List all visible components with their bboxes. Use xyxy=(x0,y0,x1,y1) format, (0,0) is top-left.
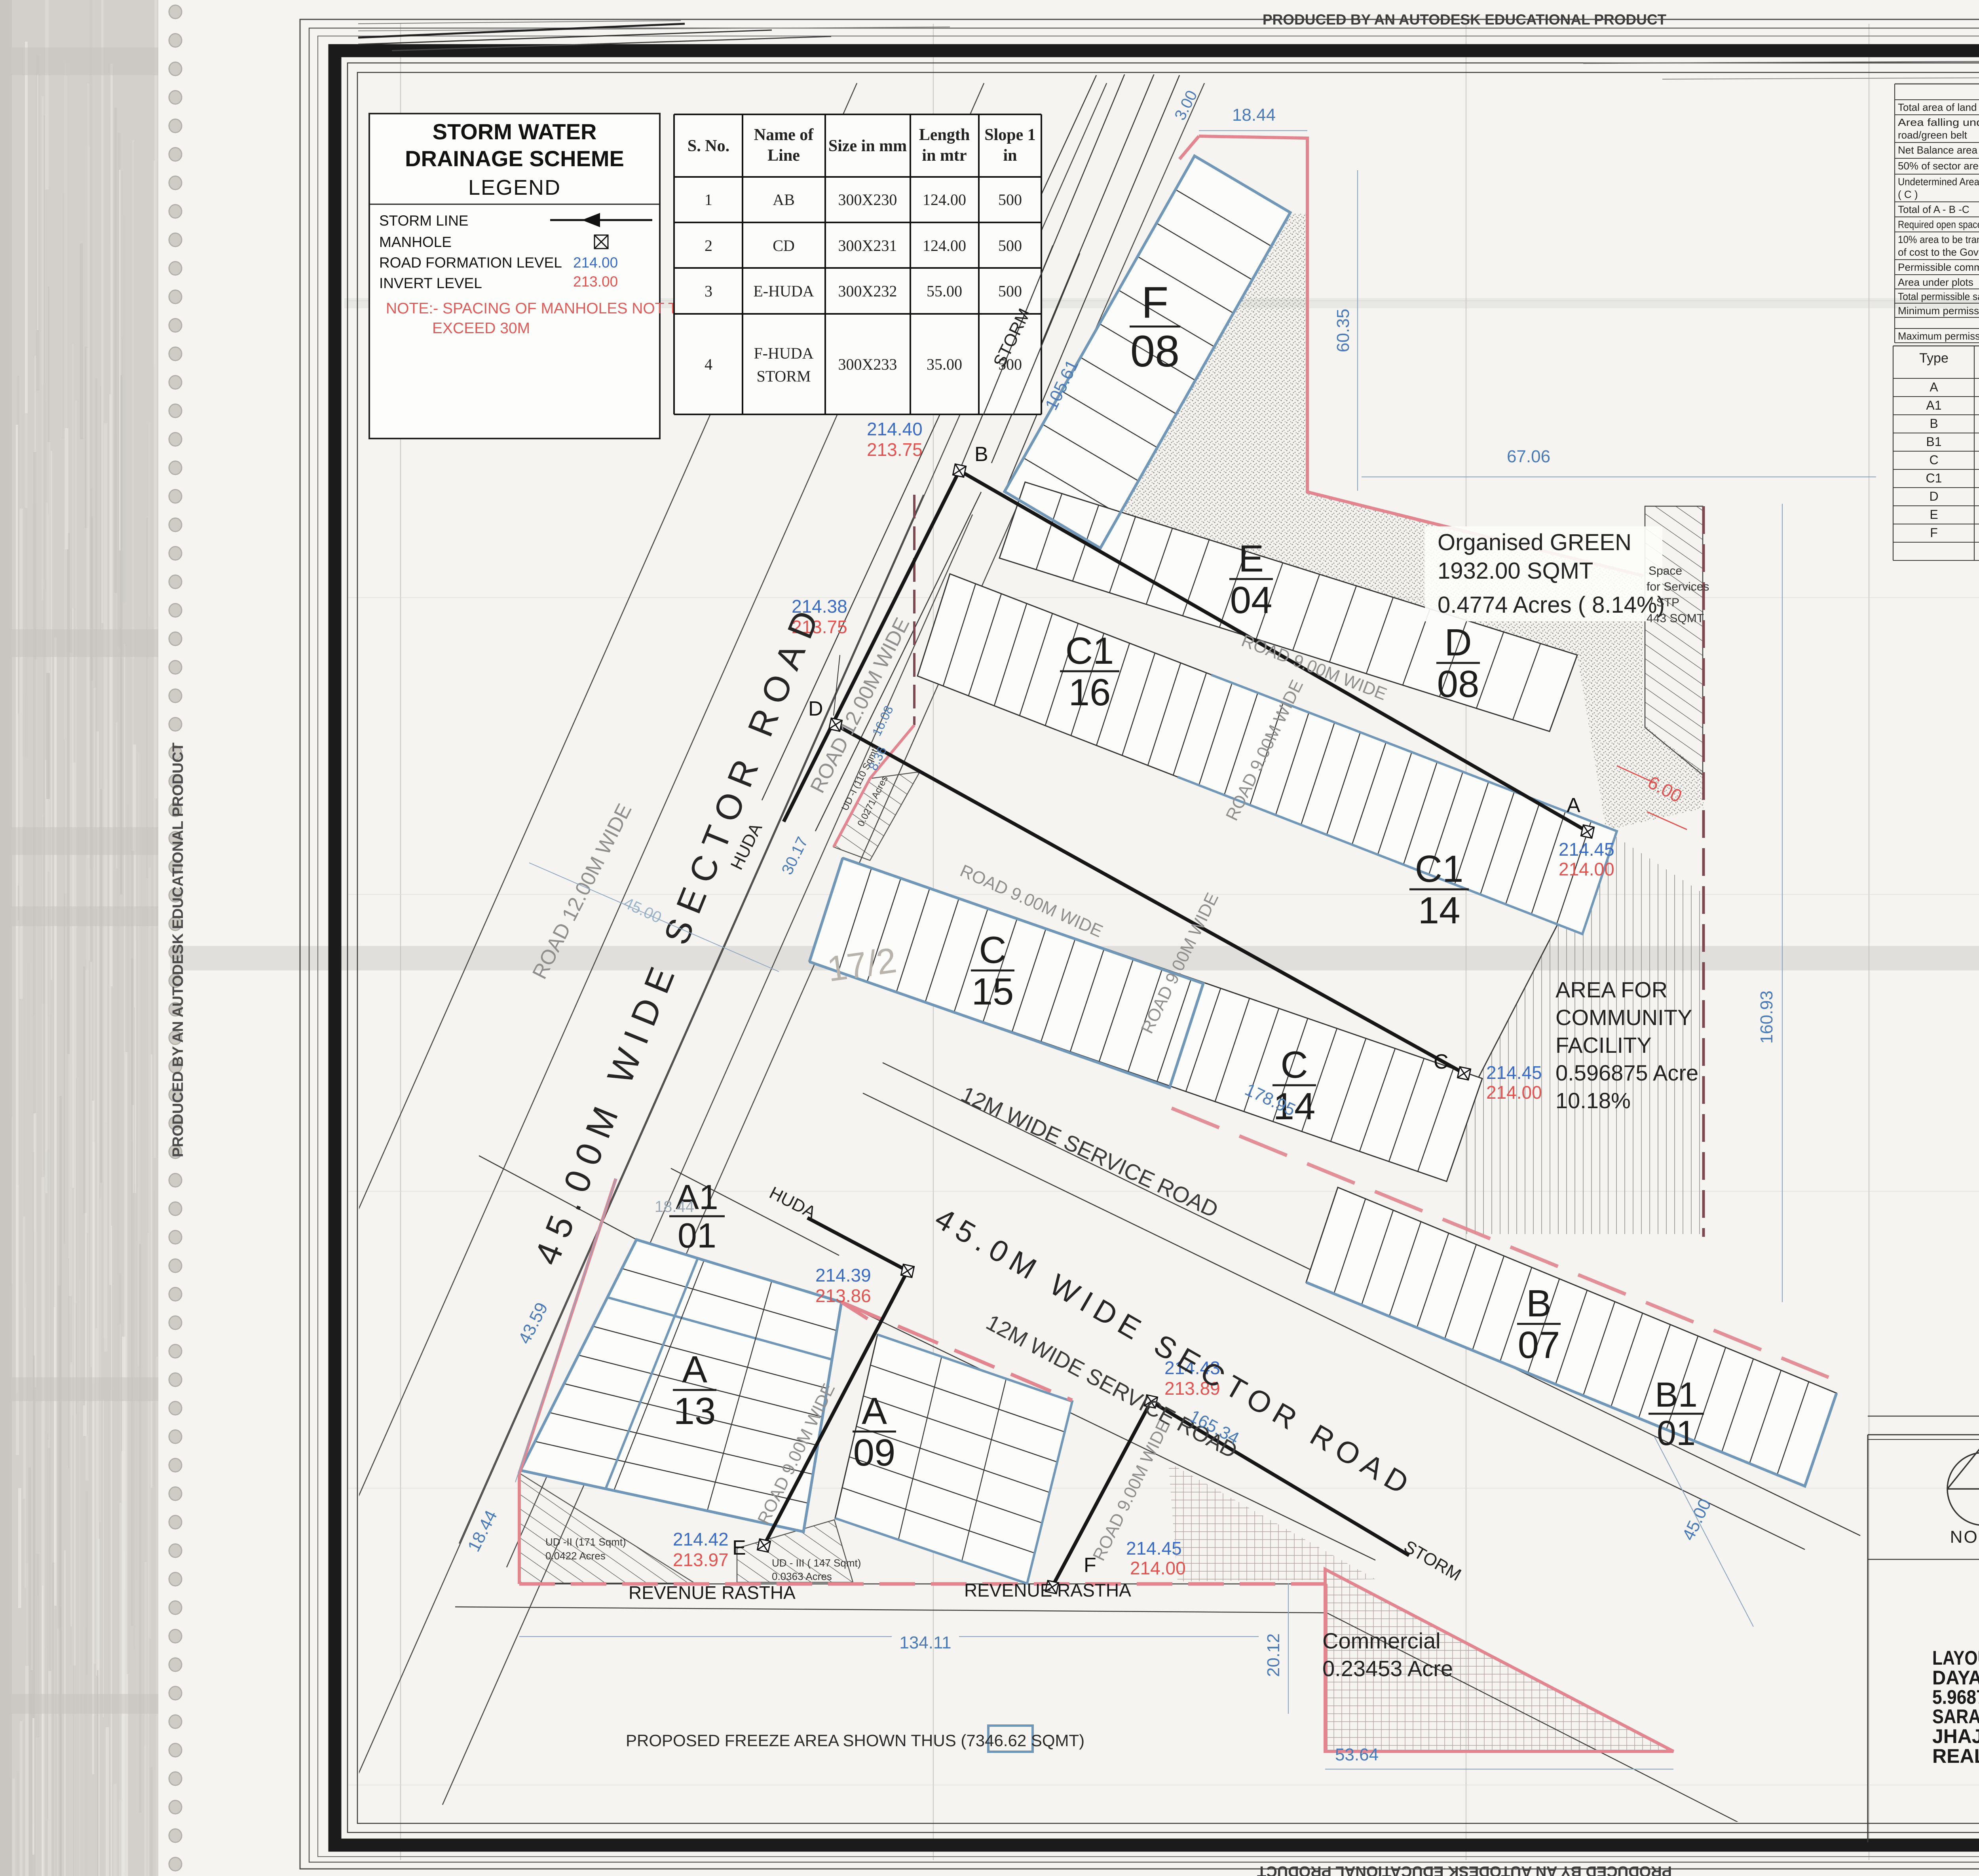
svg-text:Size in mm: Size in mm xyxy=(828,137,907,155)
svg-text:300X232: 300X232 xyxy=(838,282,897,300)
svg-text:PRODUCED BY AN AUTODESK EDUCAT: PRODUCED BY AN AUTODESK EDUCATIONAL PROD… xyxy=(1257,1863,1672,1876)
svg-text:F-HUDA: F-HUDA xyxy=(754,344,813,362)
svg-text:53.64: 53.64 xyxy=(1335,1745,1379,1764)
svg-text:B1: B1 xyxy=(1655,1375,1698,1414)
svg-text:2: 2 xyxy=(705,237,712,254)
svg-text:Minimum permissible density: Minimum permissible density xyxy=(1898,305,1979,317)
svg-text:160.93: 160.93 xyxy=(1757,991,1776,1044)
svg-text:Permissible commercial area: Permissible commercial area xyxy=(1898,261,1979,273)
svg-text:08: 08 xyxy=(1437,663,1480,705)
svg-text:Name of: Name of xyxy=(754,126,814,144)
svg-text:AREA FOR: AREA FOR xyxy=(1555,977,1668,1002)
svg-text:UD -II (171 Sqmt): UD -II (171 Sqmt) xyxy=(545,1536,626,1548)
svg-text:B1: B1 xyxy=(1926,435,1941,449)
svg-text:JHAJJAR (HARYANA) BEING: JHAJJAR (HARYANA) BEING DEVELOPED BY MIC… xyxy=(1932,1725,1979,1747)
svg-text:55.00: 55.00 xyxy=(927,282,962,300)
svg-text:214.00: 214.00 xyxy=(1486,1082,1542,1103)
svg-text:214.40: 214.40 xyxy=(867,419,923,439)
svg-text:30.17: 30.17 xyxy=(779,834,811,877)
svg-text:14: 14 xyxy=(1418,889,1461,932)
svg-text:Undetermined Area ( I + II +: Undetermined Area ( I + II + III ) xyxy=(1898,176,1979,188)
svg-text:E: E xyxy=(732,1536,746,1559)
svg-text:STORM LINE: STORM LINE xyxy=(379,213,468,229)
svg-text:213.97: 213.97 xyxy=(673,1549,729,1570)
svg-text:E: E xyxy=(1930,507,1938,522)
svg-text:AB: AB xyxy=(773,191,795,209)
svg-text:DAYAL JAN AWAS YOJNA - 2016 ON: DAYAL JAN AWAS YOJNA - 2016 ON THE LAND … xyxy=(1932,1667,1979,1689)
svg-text:SARAI AURANGABAD SECTOR 3 & 14: SARAI AURANGABAD SECTOR 3 & 14, BAHADURG… xyxy=(1932,1705,1979,1728)
svg-text:0.0363 Acres: 0.0363 Acres xyxy=(772,1570,832,1582)
svg-text:300X231: 300X231 xyxy=(838,237,897,254)
svg-text:Area falling under se: Area falling under sector xyxy=(1898,116,1979,128)
svg-text:214.45: 214.45 xyxy=(1559,839,1614,860)
svg-text:E: E xyxy=(1238,537,1264,580)
svg-text:FACILITY: FACILITY xyxy=(1555,1033,1652,1058)
svg-text:STORM WATER: STORM WATER xyxy=(433,119,597,144)
svg-text:50% of sector area (B): 50% of sector area (B) xyxy=(1898,160,1979,172)
svg-text:C: C xyxy=(1929,453,1938,467)
svg-text:124.00: 124.00 xyxy=(923,191,966,209)
svg-text:C1: C1 xyxy=(1415,848,1464,890)
svg-text:60.35: 60.35 xyxy=(1333,309,1353,352)
svg-text:300X233: 300X233 xyxy=(838,355,897,373)
svg-text:18.44: 18.44 xyxy=(1232,105,1276,125)
svg-text:45.00: 45.00 xyxy=(1679,1496,1715,1543)
svg-text:EXCEED 30M: EXCEED 30M xyxy=(432,320,530,337)
svg-text:134.11: 134.11 xyxy=(899,1633,951,1652)
svg-text:D: D xyxy=(808,697,823,720)
svg-text:213.75: 213.75 xyxy=(867,439,923,460)
svg-text:09: 09 xyxy=(853,1432,896,1474)
svg-text:Commercial: Commercial xyxy=(1322,1628,1441,1653)
svg-text:Length: Length xyxy=(919,126,970,144)
svg-text:HUDA: HUDA xyxy=(766,1183,819,1223)
svg-text:0.596875 Acre: 0.596875 Acre xyxy=(1555,1060,1698,1085)
svg-text:43.59: 43.59 xyxy=(515,1299,552,1347)
svg-text:E-HUDA: E-HUDA xyxy=(753,282,814,300)
svg-text:C: C xyxy=(979,929,1006,971)
svg-text:12M WIDE SERVICE ROAD: 12M WIDE SERVICE ROAD xyxy=(957,1081,1222,1223)
svg-text:18.44: 18.44 xyxy=(464,1507,501,1555)
svg-text:3: 3 xyxy=(705,282,712,300)
svg-text:4: 4 xyxy=(705,355,712,373)
svg-text:01: 01 xyxy=(1657,1413,1696,1453)
svg-text:01: 01 xyxy=(678,1216,716,1255)
svg-text:Total area of land: Total area of land xyxy=(1898,101,1977,113)
svg-text:road/green belt: road/green belt xyxy=(1898,129,1968,141)
svg-text:214.45: 214.45 xyxy=(1126,1538,1182,1559)
svg-text:PRODUCED BY AN AUTODESK EDUCAT: PRODUCED BY AN AUTODESK EDUCATIONAL PROD… xyxy=(170,742,186,1157)
svg-text:Net Balance area (A): Net Balance area (A) xyxy=(1898,144,1979,156)
svg-text:214.45: 214.45 xyxy=(1486,1062,1542,1083)
svg-text:213.86: 213.86 xyxy=(815,1285,871,1306)
svg-text:Required open space area (7.5%: Required open space area (7.5%) xyxy=(1898,218,1979,230)
svg-text:214.00: 214.00 xyxy=(573,254,618,271)
svg-text:A: A xyxy=(1567,794,1580,817)
svg-text:INVERT LEVEL: INVERT LEVEL xyxy=(379,275,482,291)
svg-text:08: 08 xyxy=(1130,327,1180,376)
svg-text:214.42: 214.42 xyxy=(673,1529,729,1549)
svg-text:A: A xyxy=(1930,380,1938,394)
svg-text:1932.00 SQMT: 1932.00 SQMT xyxy=(1438,558,1593,584)
svg-text:NORTH: NORTH xyxy=(1950,1527,1979,1547)
svg-text:214.00: 214.00 xyxy=(1130,1558,1186,1578)
svg-text:500: 500 xyxy=(998,282,1022,300)
svg-text:PROPOSED FREEZE AREA SHOWN THU: PROPOSED FREEZE AREA SHOWN THUS (7346.62… xyxy=(626,1731,1084,1750)
svg-text:Type: Type xyxy=(1919,351,1949,366)
svg-text:A: A xyxy=(862,1390,887,1432)
svg-text:Space: Space xyxy=(1649,564,1682,577)
svg-text:S. No.: S. No. xyxy=(688,137,729,155)
svg-text:16: 16 xyxy=(1069,671,1111,714)
svg-text:10% area to be transferred fre: 10% area to be transferred free xyxy=(1898,234,1979,245)
svg-text:( C ): ( C ) xyxy=(1898,188,1918,200)
svg-text:0.23453 Acre: 0.23453 Acre xyxy=(1322,1656,1453,1681)
svg-text:REALTORS PRIVATE LIMITED.: REALTORS PRIVATE LIMITED. xyxy=(1932,1745,1979,1767)
svg-text:MANHOLE: MANHOLE xyxy=(379,234,452,250)
svg-text:04: 04 xyxy=(1230,579,1272,621)
svg-text:20.12: 20.12 xyxy=(1264,1633,1283,1677)
svg-text:of cost to the Government: of cost to the Government xyxy=(1898,246,1979,258)
svg-text:214.39: 214.39 xyxy=(815,1265,871,1285)
svg-text:Area under plots: Area under plots xyxy=(1898,276,1973,288)
svg-text:500: 500 xyxy=(998,191,1022,209)
svg-text:18.44: 18.44 xyxy=(655,1198,694,1215)
svg-text:443 SQMT: 443 SQMT xyxy=(1647,612,1704,625)
svg-text:B: B xyxy=(1930,416,1938,431)
svg-text:REVENUE RASTHA: REVENUE RASTHA xyxy=(629,1582,796,1603)
svg-text:A: A xyxy=(682,1348,707,1391)
svg-text:5.96875 ACRES FALLING IN THE R: 5.96875 ACRES FALLING IN THE REVENUE EST… xyxy=(1932,1686,1979,1708)
svg-text:C: C xyxy=(1280,1044,1308,1086)
svg-text:300X230: 300X230 xyxy=(838,191,897,209)
svg-text:ROAD FORMATION LEVEL: ROAD FORMATION LEVEL xyxy=(379,254,562,271)
svg-text:B: B xyxy=(1526,1282,1552,1325)
svg-text:3.00: 3.00 xyxy=(1171,87,1201,123)
svg-text:0.0422 Acres: 0.0422 Acres xyxy=(545,1550,606,1562)
svg-text:Total of A - B -C: Total of A - B -C xyxy=(1898,203,1970,215)
svg-text:1: 1 xyxy=(705,191,712,209)
svg-text:214.00: 214.00 xyxy=(1559,859,1614,879)
svg-text:D: D xyxy=(1929,489,1938,503)
svg-text:10.18%: 10.18% xyxy=(1555,1088,1631,1113)
svg-text:Maximum permissible density: Maximum permissible density xyxy=(1898,330,1979,342)
svg-text:for Services: for Services xyxy=(1647,580,1709,593)
svg-text:45.00: 45.00 xyxy=(621,894,664,927)
svg-text:Slope 1: Slope 1 xyxy=(984,126,1036,144)
svg-text:07: 07 xyxy=(1518,1324,1560,1366)
svg-text:124.00: 124.00 xyxy=(923,237,966,254)
svg-text:13: 13 xyxy=(674,1390,716,1432)
svg-text:in: in xyxy=(1003,146,1017,165)
svg-text:B: B xyxy=(974,443,988,466)
svg-text:Line: Line xyxy=(767,146,800,165)
svg-text:NOTE:- SPACING OF MANHOLES NOT: NOTE:- SPACING OF MANHOLES NOT TO xyxy=(386,300,689,317)
svg-text:REVENUE RASTHA: REVENUE RASTHA xyxy=(964,1580,1131,1601)
svg-text:C: C xyxy=(1434,1050,1449,1073)
svg-text:C1: C1 xyxy=(1926,471,1942,485)
svg-text:C1: C1 xyxy=(1065,630,1114,672)
svg-text:67.06: 67.06 xyxy=(1507,447,1550,466)
svg-text:STORM: STORM xyxy=(756,367,811,385)
svg-text:A1: A1 xyxy=(1926,398,1941,412)
svg-text:500: 500 xyxy=(998,237,1022,254)
svg-text:PRODUCED BY AN AUTODESK EDUCAT: PRODUCED BY AN AUTODESK EDUCATIONAL PROD… xyxy=(1263,11,1667,28)
svg-text:F: F xyxy=(1141,278,1168,327)
svg-text:Total permissible saleable are: Total permissible saleable area xyxy=(1898,291,1979,302)
svg-text:15: 15 xyxy=(972,970,1014,1013)
svg-text:COMMUNITY: COMMUNITY xyxy=(1555,1005,1692,1030)
svg-text:CD: CD xyxy=(773,237,795,254)
svg-text:DRAINAGE SCHEME: DRAINAGE SCHEME xyxy=(405,146,624,171)
svg-text:Organised GREEN: Organised GREEN xyxy=(1438,530,1631,555)
svg-text:UD - III ( 147 Sqmt): UD - III ( 147 Sqmt) xyxy=(772,1557,861,1569)
svg-text:in mtr: in mtr xyxy=(922,146,967,165)
svg-text:35.00: 35.00 xyxy=(927,355,962,373)
svg-text:STORM: STORM xyxy=(1401,1537,1464,1585)
svg-text:16.08: 16.08 xyxy=(869,703,896,738)
svg-text:D: D xyxy=(1444,621,1472,664)
svg-text:/ STP: / STP xyxy=(1650,596,1679,609)
svg-text:213.00: 213.00 xyxy=(573,273,618,290)
svg-text:F: F xyxy=(1930,526,1938,540)
svg-text:LAYOUT PLAN OF AFFORDABLE PLOT: LAYOUT PLAN OF AFFORDABLE PLOTTED COLONY… xyxy=(1932,1647,1979,1669)
svg-text:LEGEND: LEGEND xyxy=(468,176,561,199)
svg-text:0.4774 Acres ( 8.14%): 0.4774 Acres ( 8.14%) xyxy=(1438,592,1665,618)
